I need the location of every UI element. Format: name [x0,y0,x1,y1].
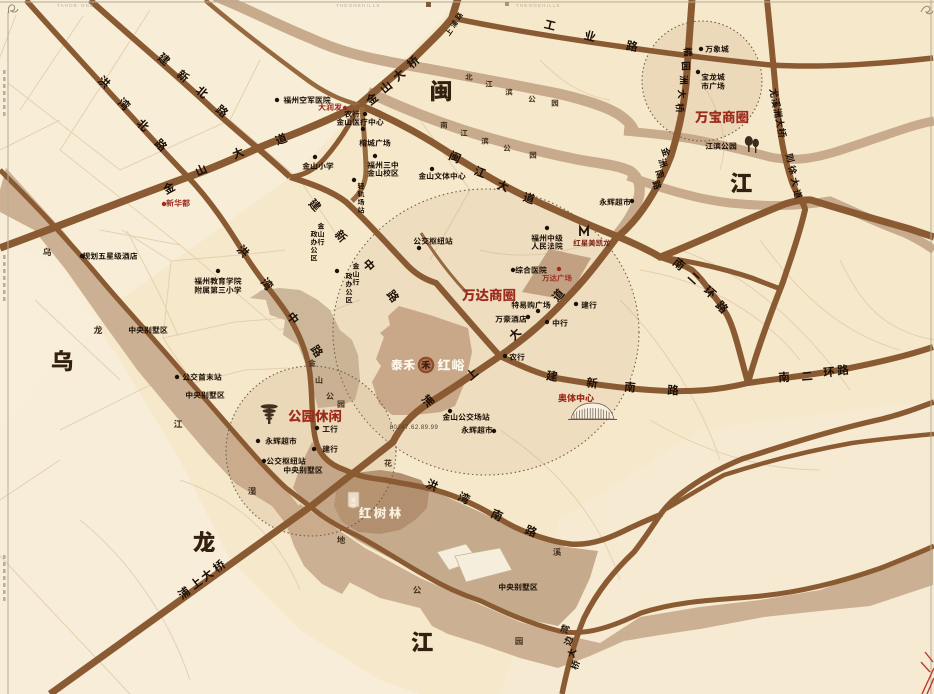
svg-text:T H E O N E H I L L S: T H E O N E H I L L S [336,3,379,8]
svg-text:80247.62.89.99: 80247.62.89.99 [390,425,439,431]
svg-text:T H E O N E H I L L S: T H E O N E H I L L S [516,3,559,8]
svg-text:T A H O E · O N E: T A H O E · O N E [57,3,93,8]
